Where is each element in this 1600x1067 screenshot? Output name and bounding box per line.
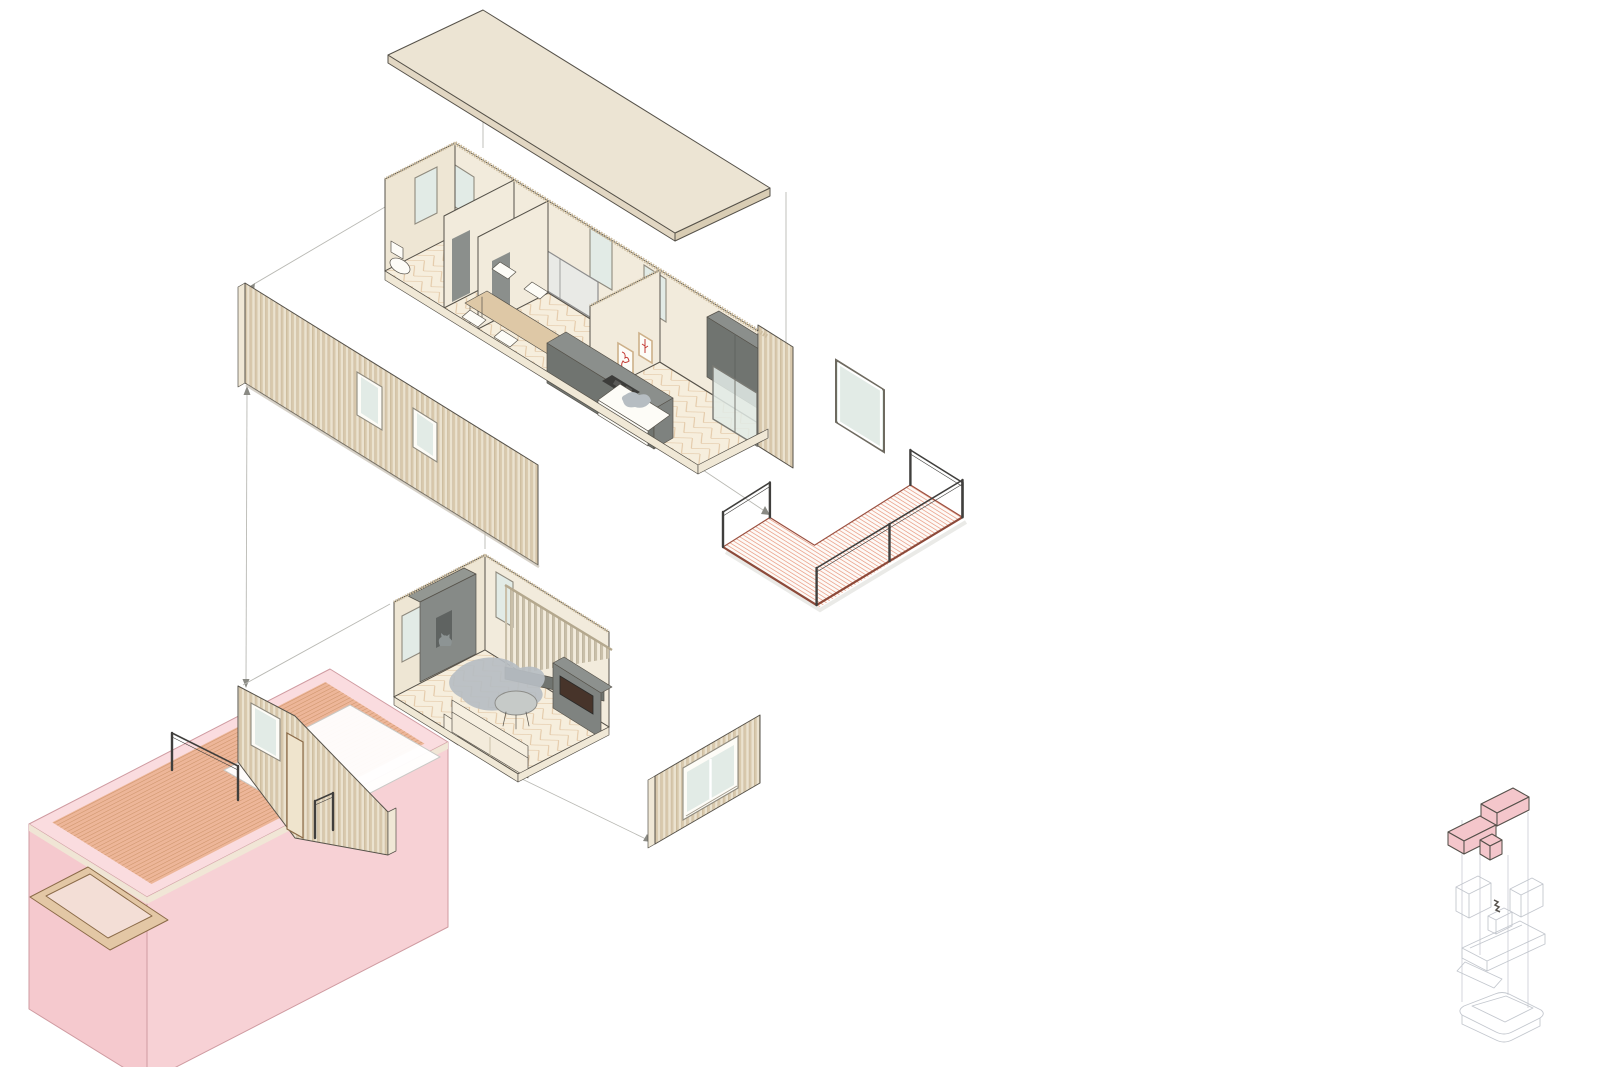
diagram-svg: Exploded axonometric diagram of a modula… (0, 0, 1600, 1067)
detached-window-panel (836, 360, 884, 452)
window-panel-align-line (520, 778, 648, 840)
panel-align-line (249, 207, 385, 287)
key-diagram (1448, 788, 1545, 1042)
base-module-highlighted (29, 669, 448, 1067)
balcony-module (723, 450, 966, 610)
panel-side-edge (648, 776, 655, 848)
door-leaf (452, 230, 470, 302)
door-opening (287, 733, 303, 838)
key-highlighted-modules (1448, 788, 1529, 860)
exploded-axonometric-canvas: Exploded axonometric diagram of a modula… (0, 0, 1600, 1067)
window-wall-panel (648, 715, 760, 848)
key-stack-outline (1456, 876, 1545, 971)
end-wall-slats (758, 325, 793, 468)
panel-drop-line (246, 392, 247, 682)
wall-end-cap (388, 808, 396, 855)
arrow-right-icon (761, 506, 770, 515)
panel-side-edge (238, 283, 245, 387)
window (836, 360, 884, 452)
key-ramp (1457, 962, 1502, 988)
living-to-base-line (243, 604, 390, 685)
deck (723, 457, 963, 607)
key-base-pad (1460, 993, 1543, 1043)
